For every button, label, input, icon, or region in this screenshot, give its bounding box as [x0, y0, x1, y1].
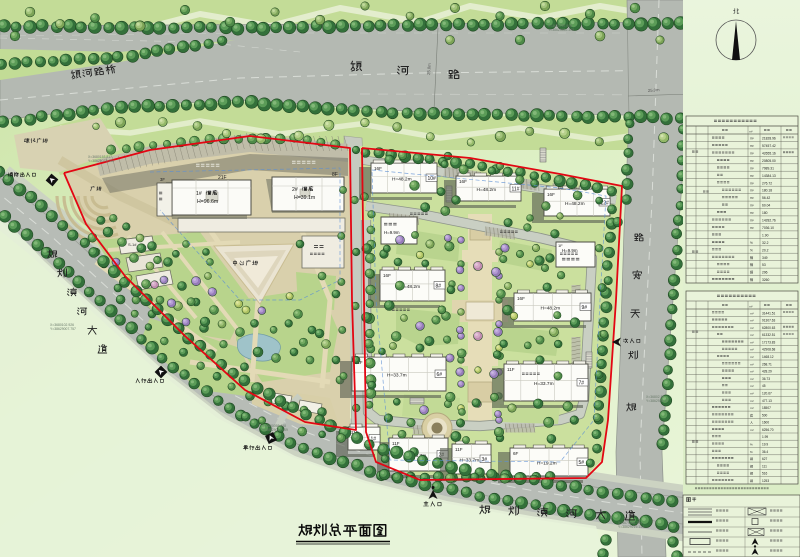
- svg-text:Y=38629057.669: Y=38629057.669: [262, 428, 288, 432]
- svg-text:Y=38629075.448: Y=38629075.448: [88, 159, 114, 163]
- svg-text:m²: m²: [750, 391, 754, 395]
- svg-text:60.04: 60.04: [762, 204, 770, 208]
- svg-text:辆: 辆: [750, 456, 753, 461]
- svg-text:36.73: 36.73: [762, 377, 770, 381]
- svg-text:m²: m²: [750, 181, 754, 185]
- svg-text:Y=3862928.17: Y=3862928.17: [646, 399, 668, 403]
- svg-text:180.18: 180.18: [762, 189, 772, 193]
- svg-text:42655.16: 42655.16: [762, 151, 776, 155]
- svg-text:11F: 11F: [455, 447, 463, 452]
- svg-text:57457.42: 57457.42: [762, 144, 776, 148]
- svg-text:20.2: 20.2: [762, 248, 769, 252]
- svg-text:H=33.7m: H=33.7m: [460, 458, 480, 464]
- svg-text:16F: 16F: [383, 273, 391, 278]
- svg-text:m²: m²: [749, 305, 753, 309]
- svg-text:m²: m²: [750, 189, 754, 193]
- svg-text:111: 111: [762, 464, 767, 468]
- svg-text:180: 180: [762, 211, 768, 215]
- svg-text:辆: 辆: [750, 478, 753, 483]
- svg-text:516: 516: [762, 472, 768, 476]
- svg-text:11#: 11#: [512, 187, 520, 193]
- svg-text:m²: m²: [750, 226, 754, 230]
- svg-text:Y=38629007.757: Y=38629007.757: [50, 327, 76, 331]
- svg-text:1.90: 1.90: [762, 233, 769, 237]
- svg-text:16F: 16F: [517, 296, 525, 301]
- svg-text:91307.63: 91307.63: [762, 319, 776, 323]
- svg-text:56.42: 56.42: [762, 196, 770, 200]
- svg-text:7#: 7#: [579, 381, 585, 387]
- svg-text:H=48.2m: H=48.2m: [565, 201, 585, 207]
- svg-text:349: 349: [762, 256, 768, 260]
- svg-text:3F: 3F: [160, 177, 165, 182]
- svg-text:19.9: 19.9: [762, 443, 768, 447]
- svg-text:H=96.6m: H=96.6m: [197, 199, 218, 205]
- svg-text:m²: m²: [750, 137, 754, 141]
- svg-text:%: %: [750, 248, 753, 252]
- svg-text:m²: m²: [750, 151, 754, 155]
- svg-text:31441.51: 31441.51: [762, 311, 776, 315]
- svg-text:辆: 辆: [750, 463, 753, 468]
- svg-text:14282.76: 14282.76: [762, 219, 776, 223]
- svg-text:m²: m²: [749, 130, 753, 134]
- svg-text:m²: m²: [750, 159, 754, 163]
- svg-text:m²: m²: [750, 428, 754, 432]
- svg-text:套: 套: [750, 412, 753, 417]
- svg-text:10#: 10#: [428, 176, 437, 182]
- svg-text:32.2: 32.2: [762, 241, 769, 245]
- svg-text:21828.96: 21828.96: [762, 137, 776, 141]
- svg-text:Y=38629219.134: Y=38629219.134: [618, 525, 644, 529]
- svg-text:296: 296: [762, 271, 768, 275]
- svg-text:H=48.2m: H=48.2m: [477, 187, 497, 193]
- svg-text:m²: m²: [750, 340, 754, 344]
- svg-text:25.0m: 25.0m: [648, 87, 660, 93]
- svg-text:42908.68: 42908.68: [762, 348, 776, 352]
- svg-text:m²: m²: [750, 311, 754, 315]
- svg-text:m²: m²: [750, 399, 754, 403]
- svg-text:H=48.2m: H=48.2m: [392, 177, 412, 183]
- svg-text:H=33.7m: H=33.7m: [534, 381, 554, 387]
- svg-text:6#: 6#: [437, 372, 443, 378]
- svg-text:%: %: [750, 450, 753, 454]
- svg-text:18507: 18507: [762, 406, 771, 410]
- svg-text:477.13: 477.13: [762, 399, 772, 403]
- svg-text:Y=38629452.308: Y=38629452.308: [548, 28, 574, 32]
- svg-text:m²: m²: [750, 166, 754, 170]
- svg-text:1.99: 1.99: [762, 435, 768, 439]
- svg-text:1600: 1600: [762, 421, 769, 425]
- svg-text:m²: m²: [750, 355, 754, 359]
- svg-text:m²: m²: [750, 319, 754, 323]
- svg-text:m²: m²: [750, 362, 754, 366]
- svg-text:627: 627: [762, 457, 768, 461]
- svg-text:7036.10: 7036.10: [762, 226, 774, 230]
- svg-text:61332.51: 61332.51: [762, 333, 776, 337]
- svg-text:21F: 21F: [218, 175, 227, 181]
- svg-text:m²: m²: [750, 348, 754, 352]
- svg-text:H=48.2m: H=48.2m: [541, 306, 561, 312]
- svg-text:H=39.1m: H=39.1m: [294, 195, 315, 201]
- svg-text:H=19.2m: H=19.2m: [537, 461, 557, 467]
- svg-text:H=9.9m: H=9.9m: [562, 248, 578, 253]
- svg-text:6F: 6F: [513, 451, 519, 456]
- svg-text:25.0m: 25.0m: [426, 63, 432, 75]
- svg-text:m²: m²: [750, 211, 754, 215]
- svg-text:62800.63: 62800.63: [762, 326, 776, 330]
- svg-text:H=9.9m: H=9.9m: [384, 230, 400, 235]
- svg-text:276.72: 276.72: [762, 181, 772, 185]
- svg-text:8F: 8F: [332, 172, 338, 178]
- svg-text:m²: m²: [750, 326, 754, 330]
- svg-text:11F: 11F: [507, 367, 515, 372]
- svg-text:6256.70: 6256.70: [762, 428, 774, 432]
- svg-text:500: 500: [762, 413, 768, 417]
- svg-text:m²: m²: [750, 196, 754, 200]
- svg-text:1468.12: 1468.12: [762, 355, 774, 359]
- svg-text:16F: 16F: [459, 179, 467, 184]
- svg-text:%: %: [750, 241, 753, 245]
- svg-text:m²: m²: [750, 174, 754, 178]
- svg-text:17173.83: 17173.83: [762, 340, 776, 344]
- svg-text:45: 45: [762, 384, 766, 388]
- svg-text:S-1#: S-1#: [128, 242, 137, 247]
- svg-text:5#: 5#: [579, 460, 585, 466]
- svg-text:16F: 16F: [547, 192, 555, 197]
- svg-text:%: %: [750, 443, 753, 447]
- svg-text:3#: 3#: [482, 457, 488, 463]
- svg-text:m²: m²: [750, 384, 754, 388]
- svg-text:H=33.7m: H=33.7m: [387, 373, 407, 379]
- svg-text:3260: 3260: [762, 278, 770, 282]
- svg-text:1#: 1#: [196, 191, 202, 197]
- svg-text:120.67: 120.67: [762, 391, 772, 395]
- svg-text:268.71: 268.71: [762, 362, 772, 366]
- svg-text:m²: m²: [750, 333, 754, 337]
- svg-text:m²: m²: [750, 144, 754, 148]
- svg-text:9#: 9#: [582, 305, 588, 311]
- svg-text:2#: 2#: [292, 187, 298, 193]
- svg-text:m²: m²: [750, 406, 754, 410]
- svg-text:人: 人: [750, 421, 753, 425]
- svg-text:11F: 11F: [392, 441, 400, 446]
- svg-text:m²: m²: [750, 219, 754, 223]
- svg-text:m²: m²: [750, 377, 754, 381]
- svg-text:36.4: 36.4: [762, 450, 768, 454]
- svg-text:14384.13: 14384.13: [762, 174, 776, 178]
- svg-text:53: 53: [762, 263, 766, 267]
- svg-text:20805.00: 20805.00: [762, 159, 776, 163]
- svg-text:辆: 辆: [750, 471, 753, 476]
- svg-text:7989.31: 7989.31: [762, 166, 774, 170]
- svg-text:m²: m²: [750, 370, 754, 374]
- svg-text:m²: m²: [750, 204, 754, 208]
- svg-text:8#: 8#: [436, 284, 442, 290]
- svg-text:428.29: 428.29: [762, 370, 772, 374]
- svg-text:1253: 1253: [762, 479, 769, 483]
